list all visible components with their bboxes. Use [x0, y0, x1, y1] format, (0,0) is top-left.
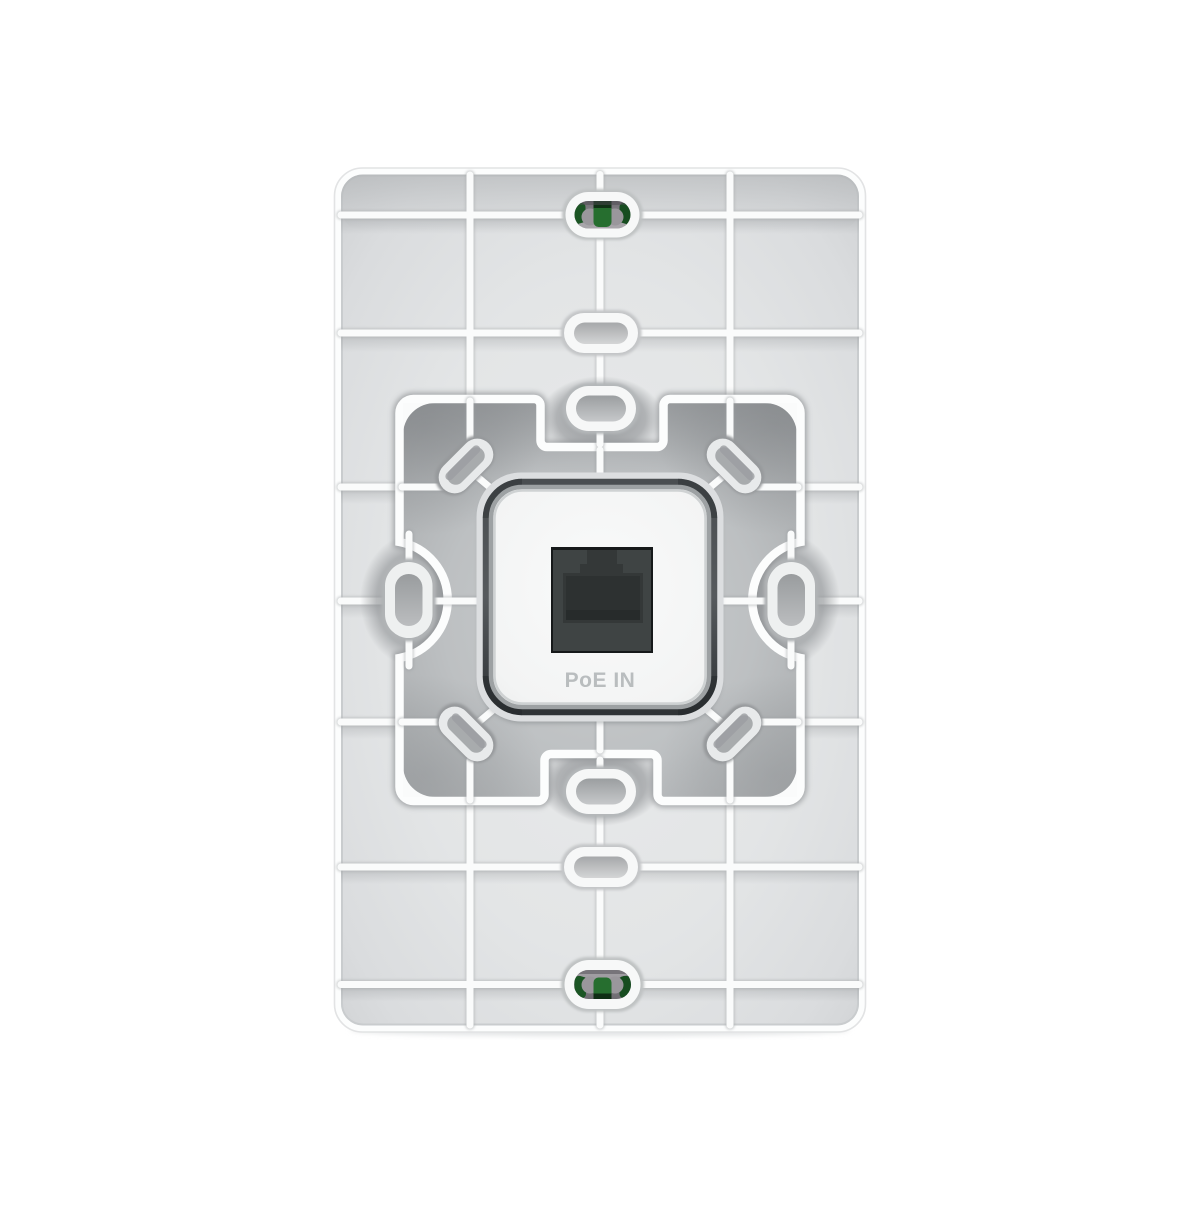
svg-text:PoE IN: PoE IN: [565, 669, 636, 692]
